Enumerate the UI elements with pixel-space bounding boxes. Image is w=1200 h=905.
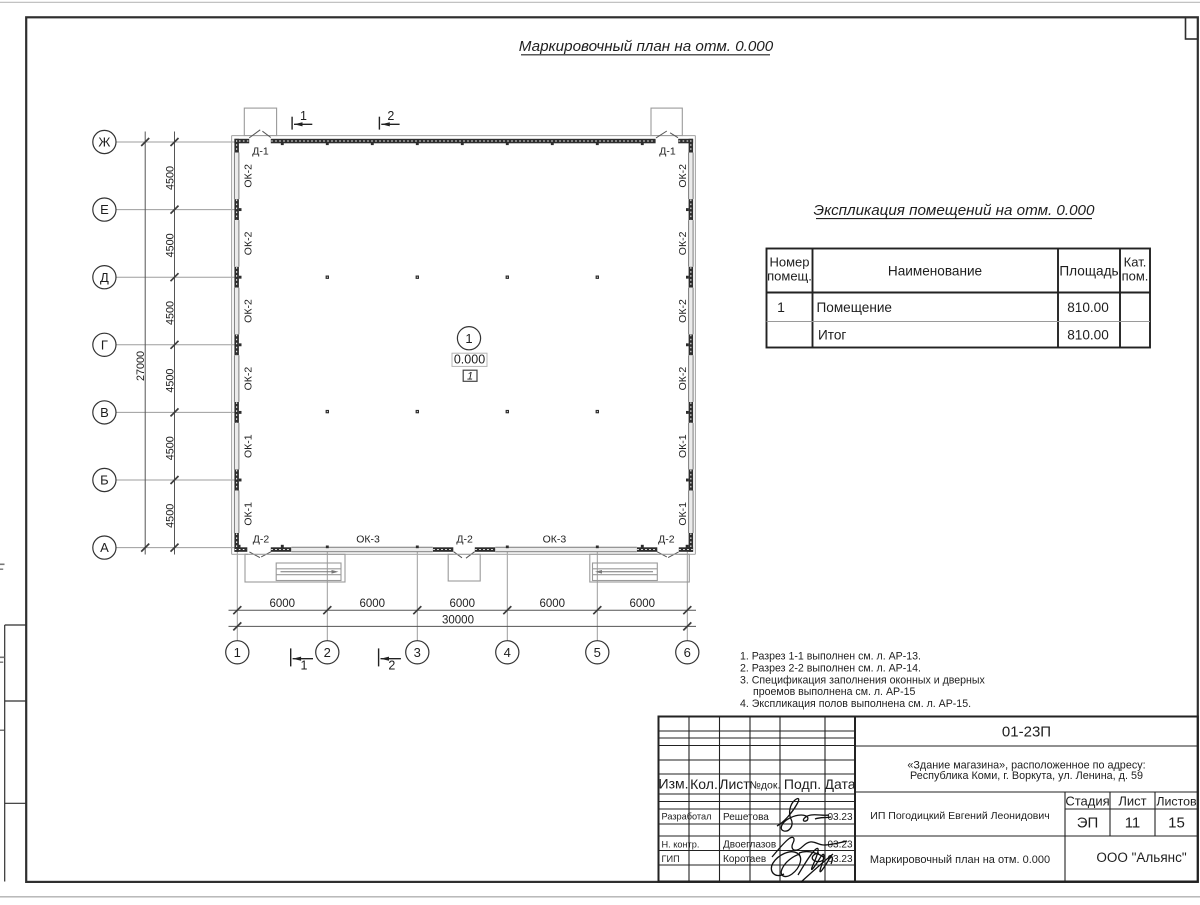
svg-text:проемов выполнена см. л. АР-15: проемов выполнена см. л. АР-15 [753,686,915,698]
svg-text:ОК-3: ОК-3 [543,534,567,546]
svg-text:Д-1: Д-1 [252,145,269,157]
svg-text:2: 2 [388,658,395,672]
svg-text:4500: 4500 [164,436,176,460]
svg-text:ОК-2: ОК-2 [243,164,255,188]
svg-text:Д: Д [100,270,109,285]
svg-text:ГИП: ГИП [662,854,680,864]
svg-text:Изм.: Изм. [659,776,689,792]
svg-text:4. Экспликация полов выполнена: 4. Экспликация полов выполнена см. л. АР… [740,698,971,710]
svg-text:03.23: 03.23 [827,840,852,851]
svg-text:6000: 6000 [270,598,296,610]
svg-text:ОК-2: ОК-2 [243,231,255,255]
svg-text:4500: 4500 [164,233,176,257]
svg-text:01-23П: 01-23П [1002,724,1051,741]
svg-text:пом.: пом. [1122,269,1149,284]
svg-text:Дата: Дата [824,776,855,792]
svg-text:1: 1 [467,371,473,383]
svg-text:Д-1: Д-1 [659,145,676,157]
svg-text:Помещение: Помещение [817,300,893,315]
svg-text:Республика Коми, г. Воркута, у: Республика Коми, г. Воркута, ул. Ленина,… [910,770,1143,782]
svg-text:ОК-1: ОК-1 [677,434,689,458]
svg-text:2. Разрез 2-2 выполнен см. л.: 2. Разрез 2-2 выполнен см. л. АР-14. [740,663,921,675]
svg-text:Ж: Ж [98,135,110,150]
svg-text:ОК-1: ОК-1 [243,502,255,526]
svg-text:ИП Погодицкий Евгений Леонидов: ИП Погодицкий Евгений Леонидович [870,810,1049,822]
svg-text:Двоеглазов: Двоеглазов [723,840,776,851]
svg-text:ОК-2: ОК-2 [677,231,689,255]
svg-text:Площадь: Площадь [1059,264,1118,279]
svg-text:Н. контр.: Н. контр. [662,840,700,850]
svg-text:4500: 4500 [164,369,176,393]
svg-text:03.23: 03.23 [827,812,852,823]
svg-text:ОК-1: ОК-1 [243,434,255,458]
svg-text:2: 2 [387,109,394,123]
svg-text:Коротаев: Коротаев [723,854,766,865]
svg-text:6000: 6000 [540,598,566,610]
svg-text:Лист: Лист [1118,793,1146,808]
svg-text:Лист: Лист [719,776,750,792]
svg-text:Кат.: Кат. [1124,255,1147,270]
svg-text:Наименование: Наименование [888,264,982,279]
svg-text:ООО "Альянс": ООО "Альянс" [1096,850,1186,865]
svg-text:4500: 4500 [164,166,176,190]
svg-text:0.000: 0.000 [454,353,485,367]
svg-text:Маркировочный план на отм. 0.0: Маркировочный план на отм. 0.000 [870,854,1050,866]
svg-text:ОК-2: ОК-2 [243,299,255,323]
svg-text:1: 1 [234,645,241,660]
svg-text:Номер: Номер [769,255,809,270]
svg-text:1: 1 [465,331,472,346]
svg-text:1: 1 [777,299,785,315]
svg-text:Маркировочный план на отм. 0.0: Маркировочный план на отм. 0.000 [519,38,774,55]
svg-text:4500: 4500 [164,301,176,325]
svg-text:Д-2: Д-2 [658,534,675,546]
svg-text:Кол.: Кол. [690,776,718,792]
svg-text:Экспликация помещений на отм.: Экспликация помещений на отм. 0.000 [814,202,1095,219]
svg-text:4500: 4500 [164,504,176,528]
svg-text:№док.: №док. [750,780,781,792]
svg-text:Стадия: Стадия [1065,793,1109,808]
svg-text:5: 5 [594,645,601,660]
svg-text:Подп.: Подп. [784,776,821,792]
svg-text:В: В [100,405,109,420]
svg-text:помещ.: помещ. [767,269,812,284]
svg-text:ОК-3: ОК-3 [356,534,380,546]
svg-text:810.00: 810.00 [1067,328,1109,343]
svg-text:Разработал: Разработал [662,812,712,822]
svg-text:ОК-2: ОК-2 [677,299,689,323]
svg-text:27000: 27000 [135,351,147,381]
svg-text:Е: Е [100,202,109,217]
svg-text:1: 1 [301,658,308,672]
svg-text:6: 6 [684,645,691,660]
svg-text:ОК-2: ОК-2 [677,164,689,188]
svg-text:810.00: 810.00 [1067,300,1109,315]
svg-text:11: 11 [1125,815,1141,832]
svg-text:1: 1 [300,109,307,123]
svg-text:3: 3 [414,645,421,660]
svg-text:Б: Б [100,473,109,488]
svg-text:4: 4 [504,645,511,660]
svg-text:6000: 6000 [360,598,386,610]
svg-text:ОК-2: ОК-2 [677,367,689,391]
svg-text:ЭП: ЭП [1077,815,1099,832]
svg-text:А: А [100,540,109,555]
svg-text:Д-2: Д-2 [456,534,473,546]
svg-text:ОК-2: ОК-2 [243,367,255,391]
svg-text:Итог: Итог [818,328,846,343]
svg-text:30000: 30000 [442,614,474,626]
svg-text:Д-2: Д-2 [253,534,270,546]
svg-text:Г: Г [101,337,108,352]
svg-text:3. Спецификация заполнения око: 3. Спецификация заполнения оконных и две… [740,674,986,686]
svg-text:Решетова: Решетова [723,812,769,823]
svg-text:2: 2 [324,645,331,660]
svg-text:Листов: Листов [1156,794,1197,808]
svg-text:1. Разрез 1-1 выполнен см. л.: 1. Разрез 1-1 выполнен см. л. АР-13. [740,651,921,663]
svg-text:6000: 6000 [630,598,656,610]
svg-text:15: 15 [1168,815,1185,832]
svg-text:ОК-1: ОК-1 [677,502,689,526]
svg-text:6000: 6000 [450,598,476,610]
